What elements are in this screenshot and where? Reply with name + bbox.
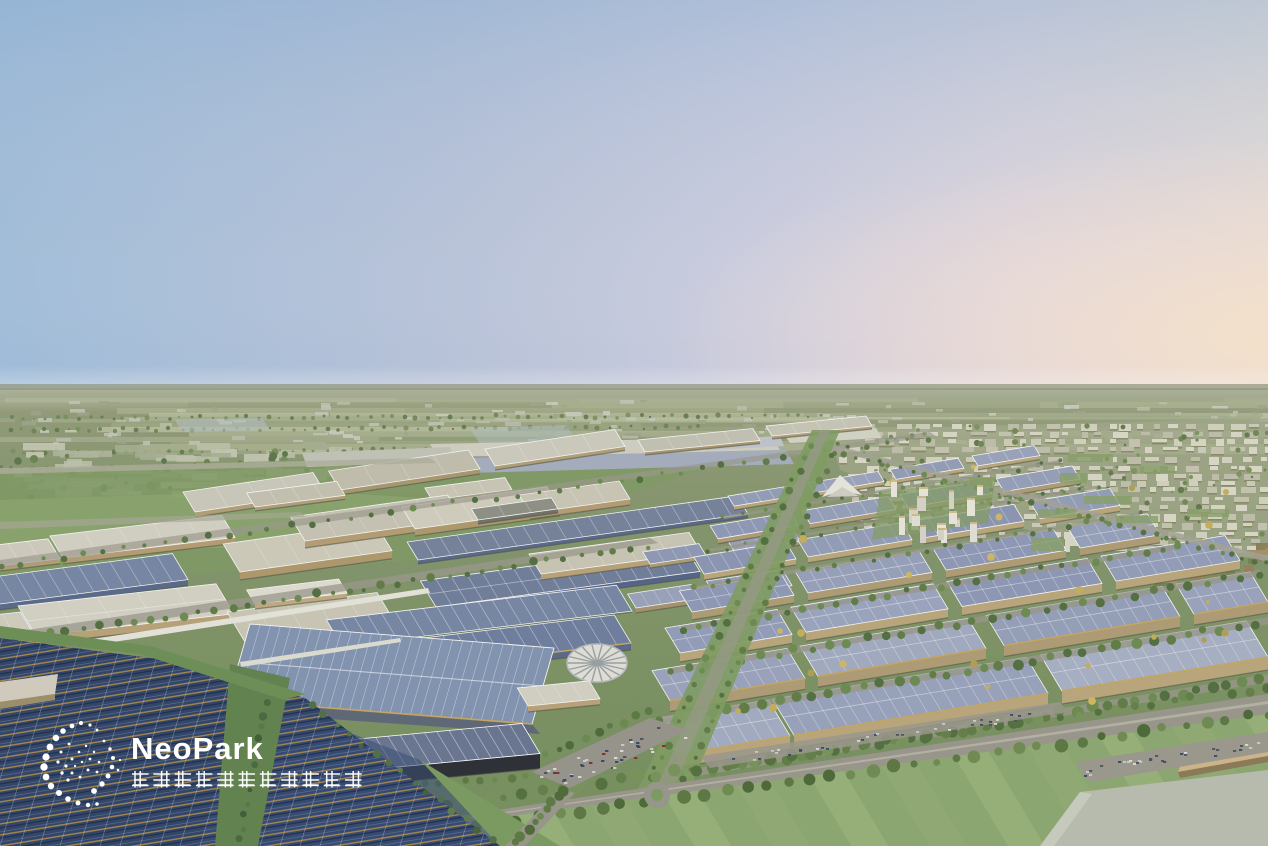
svg-text:NeoPark: NeoPark [131,731,264,766]
